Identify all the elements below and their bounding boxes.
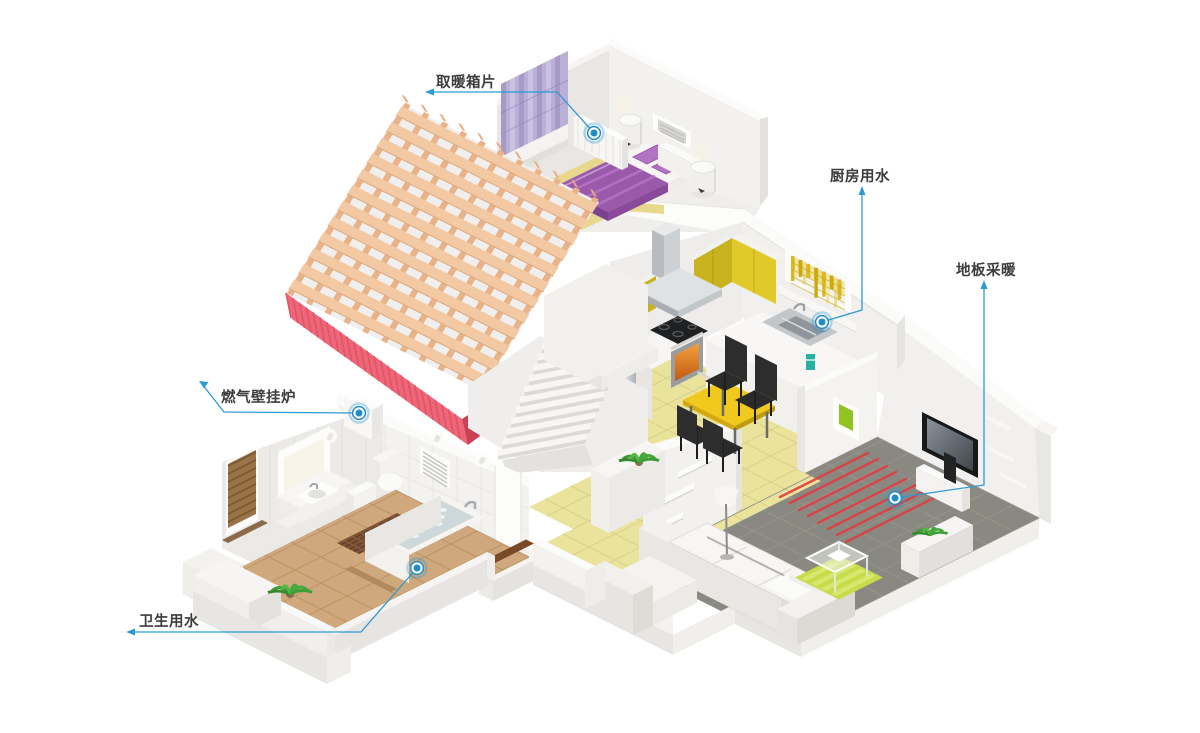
svg-text:燃气壁挂炉: 燃气壁挂炉 [221, 388, 296, 406]
svg-text:厨房用水: 厨房用水 [830, 167, 890, 185]
svg-text:地板采暖: 地板采暖 [956, 261, 1016, 279]
svg-text:卫生用水: 卫生用水 [139, 612, 199, 630]
svg-text:取暖箱片: 取暖箱片 [436, 73, 496, 91]
